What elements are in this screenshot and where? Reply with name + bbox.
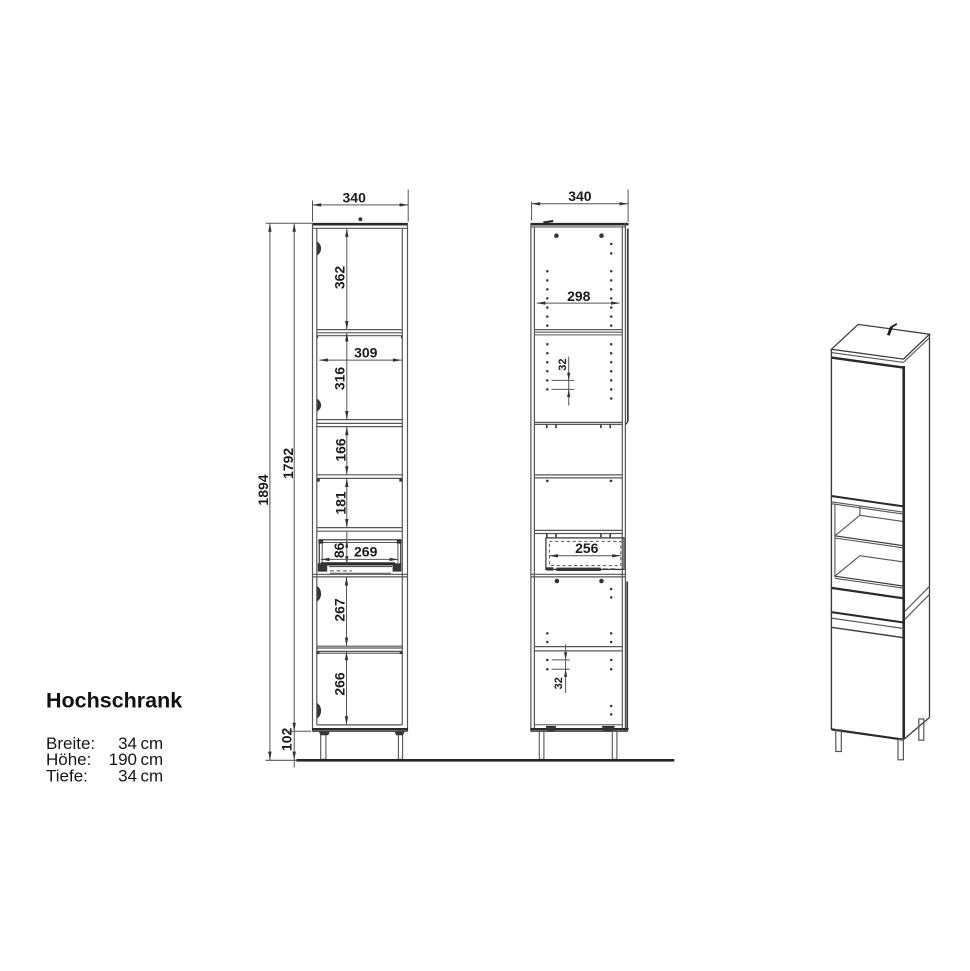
svg-text:256: 256 [575, 540, 599, 556]
svg-text:86: 86 [331, 542, 347, 558]
svg-text:1894: 1894 [255, 474, 271, 505]
svg-text:298: 298 [567, 288, 591, 304]
svg-text:266: 266 [332, 672, 348, 696]
svg-text:32: 32 [557, 358, 569, 370]
svg-text:Hochschrank: Hochschrank [46, 688, 182, 712]
svg-text:cm: cm [141, 766, 164, 785]
svg-text:34: 34 [118, 766, 137, 785]
svg-text:Tiefe:: Tiefe: [46, 766, 88, 785]
svg-text:362: 362 [332, 266, 348, 290]
svg-text:181: 181 [332, 491, 348, 515]
svg-text:340: 340 [343, 190, 367, 206]
svg-text:166: 166 [332, 438, 348, 462]
svg-text:267: 267 [332, 598, 348, 622]
svg-text:316: 316 [332, 367, 348, 391]
svg-text:340: 340 [568, 188, 592, 204]
svg-text:32: 32 [553, 677, 565, 689]
svg-text:309: 309 [354, 344, 378, 360]
svg-text:269: 269 [354, 544, 378, 560]
svg-text:1792: 1792 [280, 448, 296, 479]
